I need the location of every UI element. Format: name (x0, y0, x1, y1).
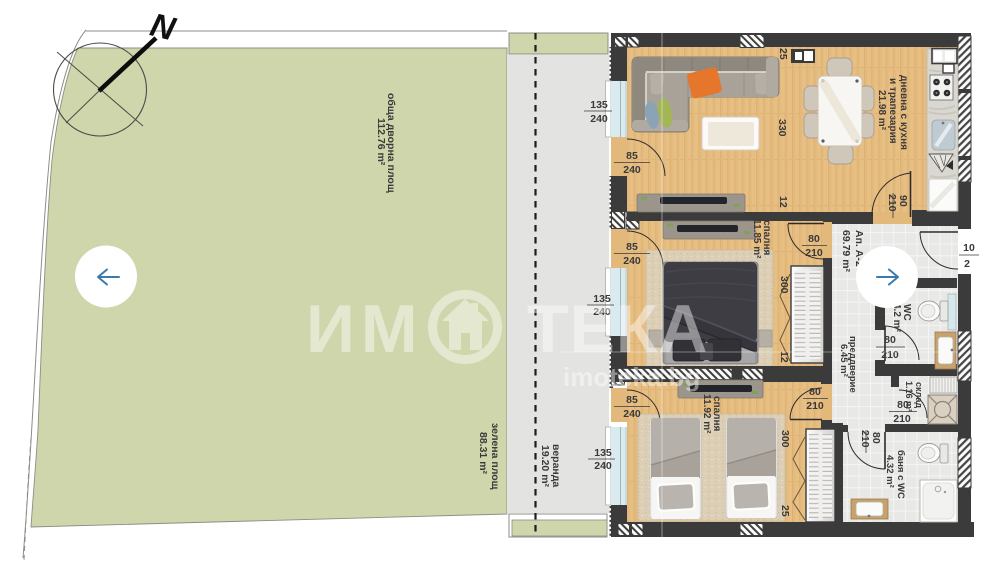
svg-text:80: 80 (808, 233, 820, 245)
svg-text:и трапезария: и трапезария (887, 78, 898, 144)
svg-text:85: 85 (626, 150, 638, 162)
svg-text:25: 25 (779, 505, 791, 517)
svg-text:135: 135 (590, 99, 608, 111)
svg-text:300: 300 (778, 276, 790, 294)
svg-text:88.31 m²: 88.31 m² (477, 432, 489, 475)
svg-text:19.20 m²: 19.20 m² (539, 445, 551, 488)
svg-text:склад: склад (914, 382, 924, 408)
svg-text:85: 85 (626, 241, 638, 253)
svg-text:80: 80 (884, 334, 896, 346)
svg-text:210: 210 (805, 247, 823, 259)
svg-text:4.32 m²: 4.32 m² (884, 455, 895, 488)
svg-text:112.76 m²: 112.76 m² (375, 118, 387, 166)
svg-text:21.98 m²: 21.98 m² (876, 90, 887, 131)
svg-text:135: 135 (594, 447, 612, 459)
svg-text:300: 300 (779, 430, 791, 448)
svg-text:210: 210 (886, 194, 898, 212)
svg-text:240: 240 (623, 408, 641, 420)
svg-text:210: 210 (806, 400, 824, 412)
svg-text:зелена площ: зелена площ (489, 423, 501, 490)
svg-text:11.92 m²: 11.92 m² (701, 394, 712, 434)
svg-text:imoteka.bg: imoteka.bg (563, 362, 700, 392)
svg-text:12: 12 (777, 196, 789, 208)
svg-text:2: 2 (964, 258, 970, 270)
svg-text:80: 80 (809, 386, 821, 398)
svg-text:6.45 m²: 6.45 m² (838, 344, 849, 377)
svg-text:10: 10 (963, 242, 975, 254)
svg-text:69.79 m²: 69.79 m² (840, 230, 852, 273)
svg-text:12: 12 (778, 351, 790, 363)
svg-text:240: 240 (623, 164, 641, 176)
svg-text:1.16 m²: 1.16 m² (904, 381, 914, 412)
svg-text:210: 210 (859, 430, 871, 448)
svg-text:дневна с кухня: дневна с кухня (898, 75, 909, 150)
svg-text:330: 330 (776, 119, 788, 137)
svg-text:баня с WC: баня с WC (895, 450, 906, 499)
svg-text:210: 210 (881, 349, 899, 361)
svg-text:11.85 m²: 11.85 m² (751, 219, 762, 259)
svg-text:240: 240 (590, 113, 608, 125)
svg-text:ИМ: ИМ (306, 291, 424, 367)
svg-text:25: 25 (777, 48, 789, 60)
svg-text:240: 240 (594, 460, 612, 472)
svg-text:85: 85 (626, 394, 638, 406)
svg-text:ТЕКА: ТЕКА (527, 291, 709, 367)
svg-text:240: 240 (623, 255, 641, 267)
svg-text:210: 210 (893, 413, 911, 425)
